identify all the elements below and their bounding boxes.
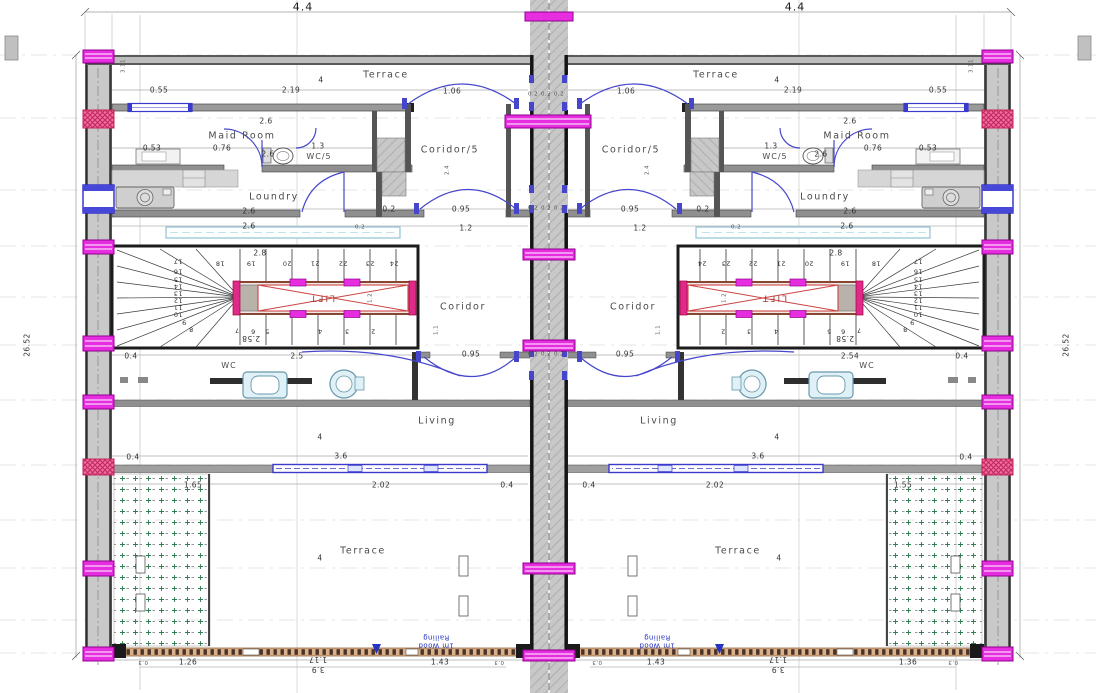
plan-linework [0,0,1096,693]
floor-plan-canvas: 4.44.426.5226.52Terrace4Terrace40.552.19… [0,0,1096,693]
